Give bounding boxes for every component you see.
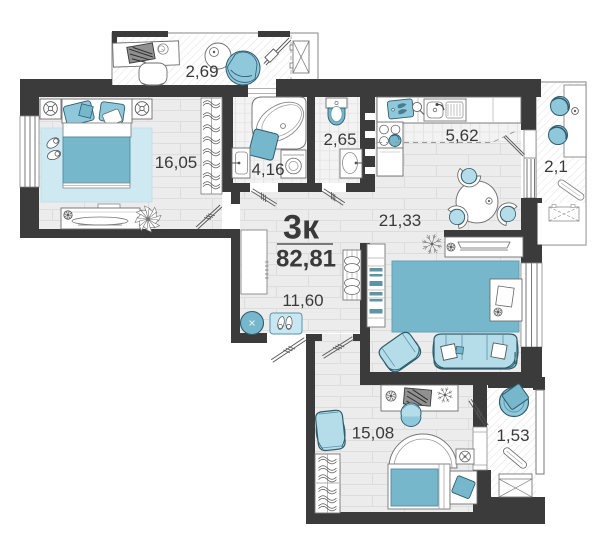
svg-text:82,81: 82,81 <box>276 246 336 273</box>
svg-text:16,05: 16,05 <box>155 153 198 172</box>
svg-text:1,53: 1,53 <box>496 426 529 445</box>
svg-text:2,1: 2,1 <box>544 157 568 176</box>
svg-text:15,08: 15,08 <box>352 424 395 443</box>
svg-text:2,69: 2,69 <box>185 62 218 81</box>
svg-text:2,65: 2,65 <box>323 130 356 149</box>
svg-text:5,62: 5,62 <box>445 126 478 145</box>
svg-text:11,60: 11,60 <box>282 291 323 310</box>
svg-text:21,33: 21,33 <box>379 211 422 230</box>
svg-text:4,16: 4,16 <box>251 160 284 179</box>
svg-text:3к: 3к <box>283 209 320 247</box>
